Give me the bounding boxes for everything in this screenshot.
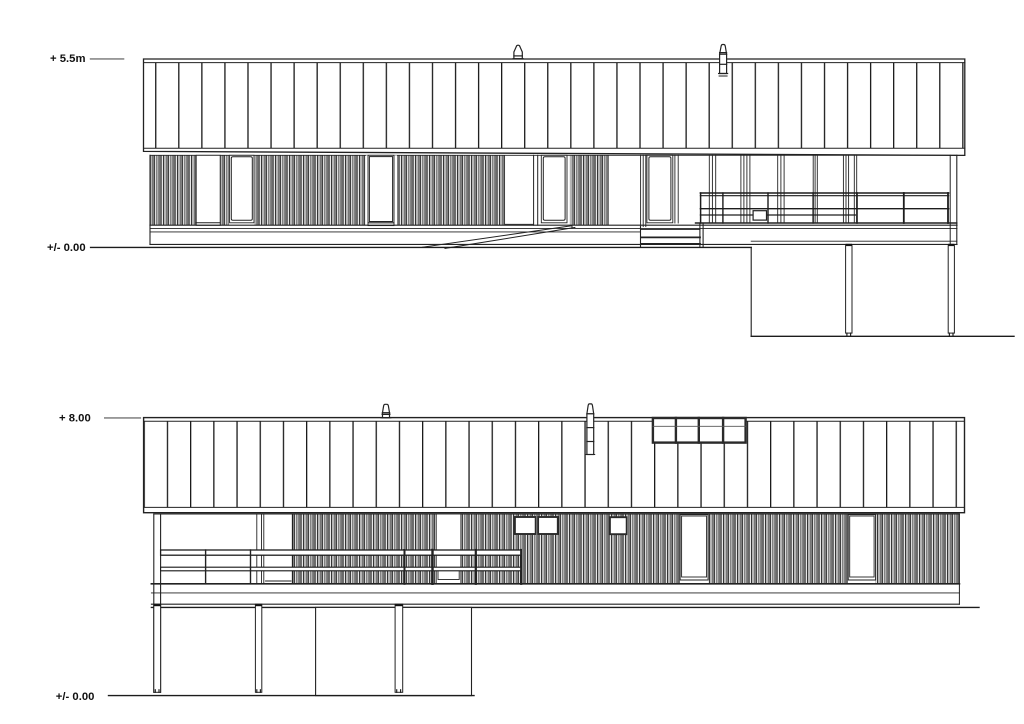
svg-text:+/- 0.00: +/- 0.00 — [47, 242, 86, 254]
svg-text:+ 8.00: + 8.00 — [59, 413, 91, 425]
svg-text:+/- 0.00: +/- 0.00 — [56, 691, 95, 703]
svg-text:+ 5.5m: + 5.5m — [50, 53, 86, 65]
